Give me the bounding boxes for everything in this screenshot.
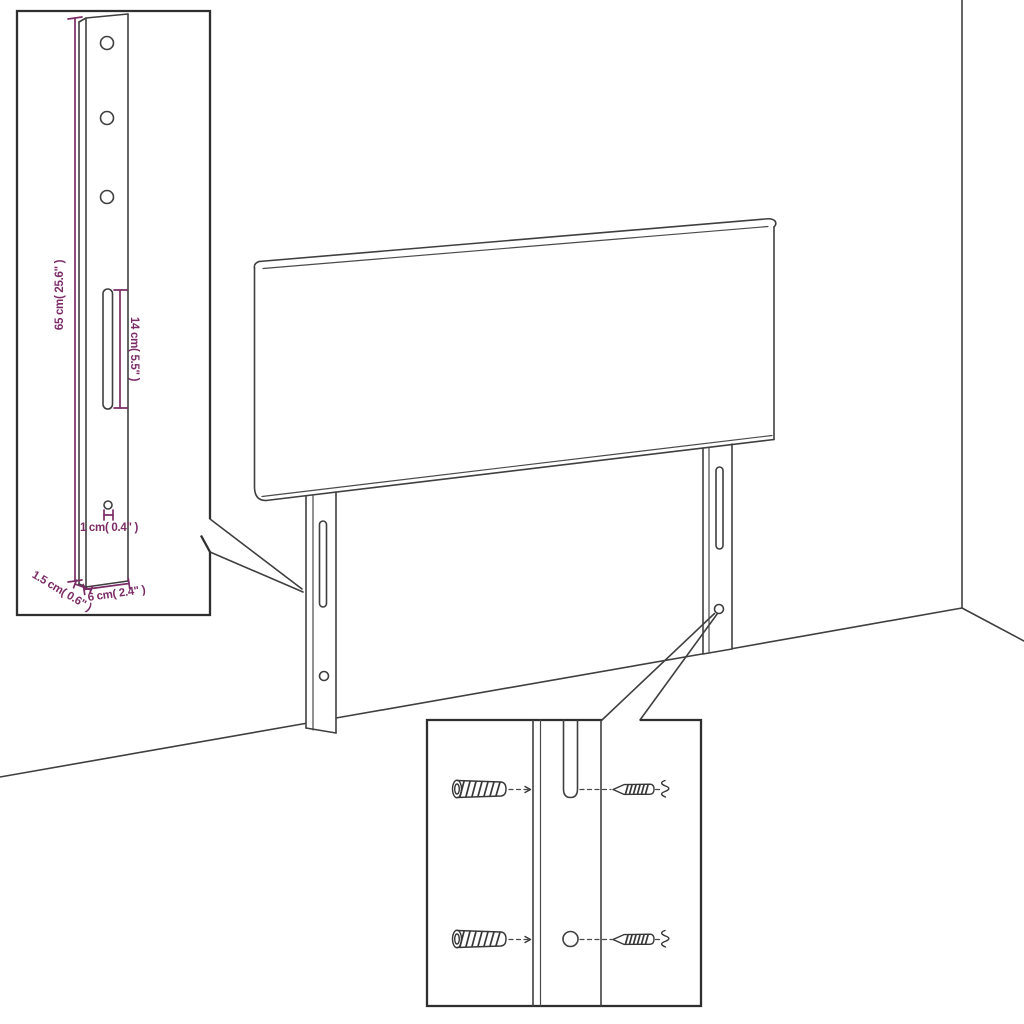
technical-drawing: 65 cm( 25.6" ) 14 cm( 5.5" ) 1 cm( 0.4" … <box>0 0 1024 1024</box>
callout-line-right <box>640 614 718 721</box>
floor-line-mid-segment <box>336 654 702 718</box>
strip-hole <box>563 932 578 947</box>
bracket-hole-top <box>101 37 114 50</box>
floor-line-right-segment <box>733 608 962 649</box>
wall-plug-upper <box>453 780 531 798</box>
room-lines <box>0 0 1024 777</box>
panel-bottom-outer-edge <box>266 440 774 501</box>
bracket-hole-lower <box>101 191 114 204</box>
callout-line-lower <box>210 552 303 592</box>
strip-slot <box>564 720 578 798</box>
floor-line-right-wall <box>962 608 1024 641</box>
screw-upper <box>613 781 669 798</box>
label-hole-offset: 1 cm( 0.4" ) <box>80 522 139 534</box>
headboard-panel <box>254 219 775 501</box>
left-leg-slot <box>320 521 327 607</box>
wall-plug-lower <box>453 930 531 948</box>
detail-box-mounting-hardware <box>427 720 701 1006</box>
label-leg-width: 6 cm( 2.4" ) <box>87 584 147 604</box>
bracket-hole-middle <box>101 112 114 125</box>
right-leg-hole <box>715 605 724 614</box>
enlarged-leg-strip <box>533 720 601 1006</box>
label-leg-height: 65 cm( 25.6" ) <box>54 259 66 330</box>
panel-top-inner-edge <box>263 227 768 269</box>
callout-left-leg <box>210 519 303 592</box>
panel-top-left-curl <box>254 262 259 269</box>
detail-box-leg-dimensions: 65 cm( 25.6" ) 14 cm( 5.5" ) 1 cm( 0.4" … <box>17 11 210 615</box>
floor-line-left-segment <box>0 724 305 778</box>
right-leg-slot <box>716 467 723 549</box>
headboard-left-leg <box>306 492 336 733</box>
dimension-hole-offset: 1 cm( 0.4" ) <box>80 510 139 534</box>
left-leg-hole <box>320 672 329 681</box>
callout-line-upper <box>210 519 302 589</box>
right-leg-bottom-edge <box>703 649 732 654</box>
left-leg-bottom-edge <box>306 728 336 733</box>
bracket-slot <box>103 289 113 409</box>
callout-line-left <box>602 614 715 721</box>
dimension-leg-height: 65 cm( 25.6" ) <box>54 17 82 582</box>
label-slot-length: 14 cm( 5.5" ) <box>128 317 140 382</box>
headboard-right-leg <box>703 444 732 654</box>
bracket-small-hole <box>104 501 112 509</box>
dimension-slot-length: 14 cm( 5.5" ) <box>114 290 140 408</box>
assembly-diagram: 65 cm( 25.6" ) 14 cm( 5.5" ) 1 cm( 0.4" … <box>0 0 1024 1024</box>
screw-lower <box>613 931 669 948</box>
panel-bottom-inner-edge <box>262 436 772 497</box>
panel-left-edge <box>255 268 267 501</box>
dim-tick <box>68 17 82 19</box>
callout-right-leg-hole <box>602 614 718 721</box>
panel-top-outer-edge <box>259 219 776 262</box>
